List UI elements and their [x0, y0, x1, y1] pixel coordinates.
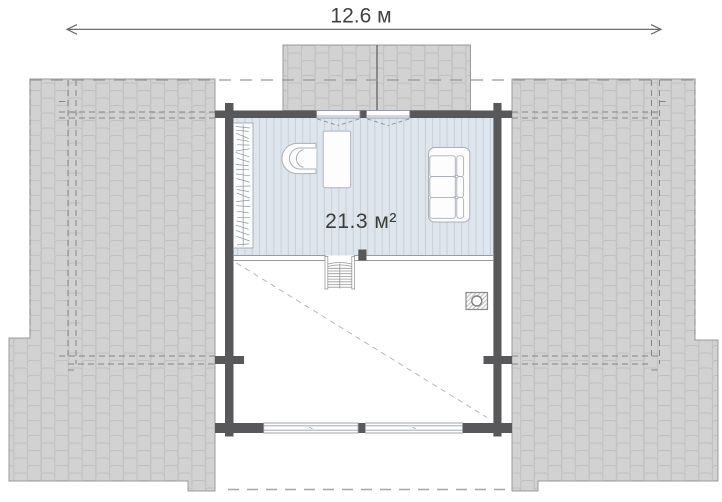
svg-text:12.6 м: 12.6 м	[330, 5, 391, 28]
svg-text:21.3 м²: 21.3 м²	[325, 210, 397, 233]
